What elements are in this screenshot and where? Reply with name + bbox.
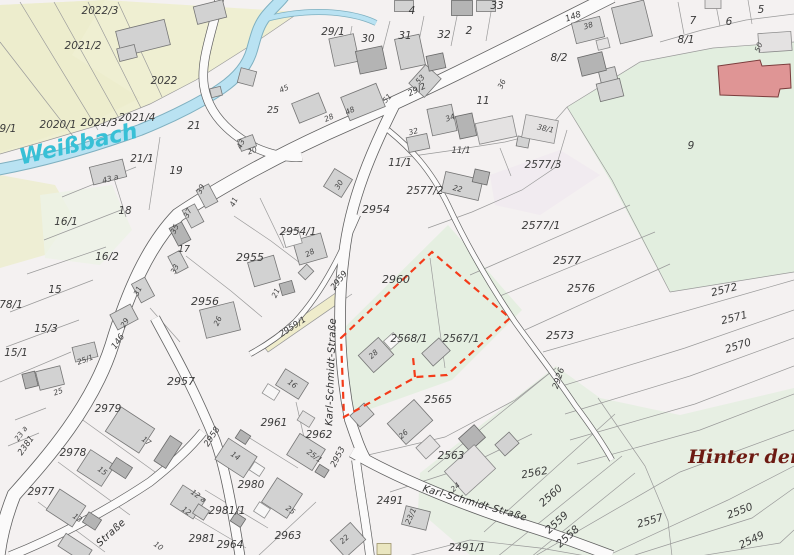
building — [452, 1, 473, 16]
parcel-label: 6 — [726, 16, 733, 28]
building — [472, 169, 490, 185]
parcel-label: 2 — [466, 25, 473, 37]
parcel-label: 2568/1 — [391, 333, 428, 345]
parcel-label: 2021/2 — [65, 40, 102, 52]
parcel-label: 2981 — [189, 533, 216, 545]
building — [355, 46, 386, 74]
parcel-label: 2961 — [261, 417, 288, 429]
map-viewport[interactable]: 2022/32021/220222020/12021/32021/49/1212… — [0, 0, 794, 555]
parcel-label: 4 — [409, 5, 416, 17]
parcel-label: 5 — [758, 4, 765, 16]
parcel-label: 9 — [688, 140, 695, 152]
parcel-label: 2577 — [553, 254, 581, 267]
building — [377, 544, 391, 555]
parcel-label: 11/1 — [388, 157, 412, 169]
parcel-label: 2979 — [95, 403, 122, 415]
parcel-label: 18 — [118, 205, 132, 217]
parcel-label: 29/1 — [321, 26, 345, 38]
parcel-label: 15/1 — [4, 347, 28, 359]
parcel-label: 2960 — [382, 273, 410, 286]
parcel-label: 2022/3 — [82, 5, 119, 17]
parcel-label: 2977 — [28, 486, 55, 498]
parcel-label: 2491 — [377, 495, 404, 507]
parcel-label: 2020/1 — [40, 119, 77, 131]
parcel-label: 2565 — [424, 393, 452, 406]
parcel-label: 11/1 — [451, 146, 470, 156]
parcel-label: 16/2 — [95, 251, 119, 263]
parcel-label: 2577/2 — [407, 185, 444, 197]
parcel-label: 2962 — [306, 429, 333, 441]
parcel-label: 17 — [178, 244, 190, 255]
parcel-label: 11 — [476, 95, 489, 107]
parcel-label: 2491/1 — [449, 542, 486, 554]
parcel-label: 2567/1 — [443, 333, 480, 345]
parcel-label: 2573 — [546, 329, 574, 342]
parcel-label: 2954/1 — [280, 226, 317, 238]
building — [705, 0, 721, 9]
parcel-label: 2022 — [151, 75, 178, 87]
parcel-label: 30 — [361, 33, 375, 45]
parcel-label: 33 — [490, 0, 503, 12]
parcel-label: 2957 — [167, 375, 195, 388]
parcel-label: 2963 — [275, 530, 302, 542]
parcel-label: 2563 — [438, 450, 465, 462]
parcel-label: 2964 — [217, 539, 244, 551]
parcel-label: 31 — [398, 30, 411, 42]
parcel-label: 25 — [267, 105, 279, 116]
parcel-label: 2954 — [362, 203, 390, 216]
parcel-label: 2577/3 — [525, 159, 562, 171]
parcel-label: 2980 — [238, 479, 265, 491]
parcel-label: 15 — [48, 284, 62, 296]
parcel-label: 2956 — [191, 295, 219, 308]
parcel-label: 9/1 — [0, 123, 16, 135]
parcel-label: 16/1 — [54, 216, 78, 228]
parcel-label: 21/1 — [130, 153, 154, 165]
parcel-label: 8/1 — [678, 34, 695, 46]
parcel-label: 7 — [690, 15, 697, 27]
parcel-label: 21 — [187, 120, 200, 132]
parcel-label: 2981/1 — [209, 505, 246, 517]
parcel-label: 2978 — [60, 447, 87, 459]
cadastral-map[interactable]: 2022/32021/220222020/12021/32021/49/1212… — [0, 0, 794, 555]
place-label: Hinter der — [687, 446, 794, 468]
parcel-label: 19 — [169, 165, 183, 177]
parcel-label: 2576 — [567, 282, 595, 295]
parcel-label: 32 — [437, 29, 451, 41]
building — [329, 34, 359, 67]
building — [426, 53, 446, 71]
parcel-label: 78/1 — [0, 299, 23, 311]
building — [758, 31, 792, 52]
parcel-label: 2577/1 — [522, 219, 561, 232]
parcel-label: 15/3 — [34, 323, 58, 335]
parcel-label: 2955 — [236, 251, 264, 264]
parcel-label: 8/2 — [551, 52, 568, 64]
